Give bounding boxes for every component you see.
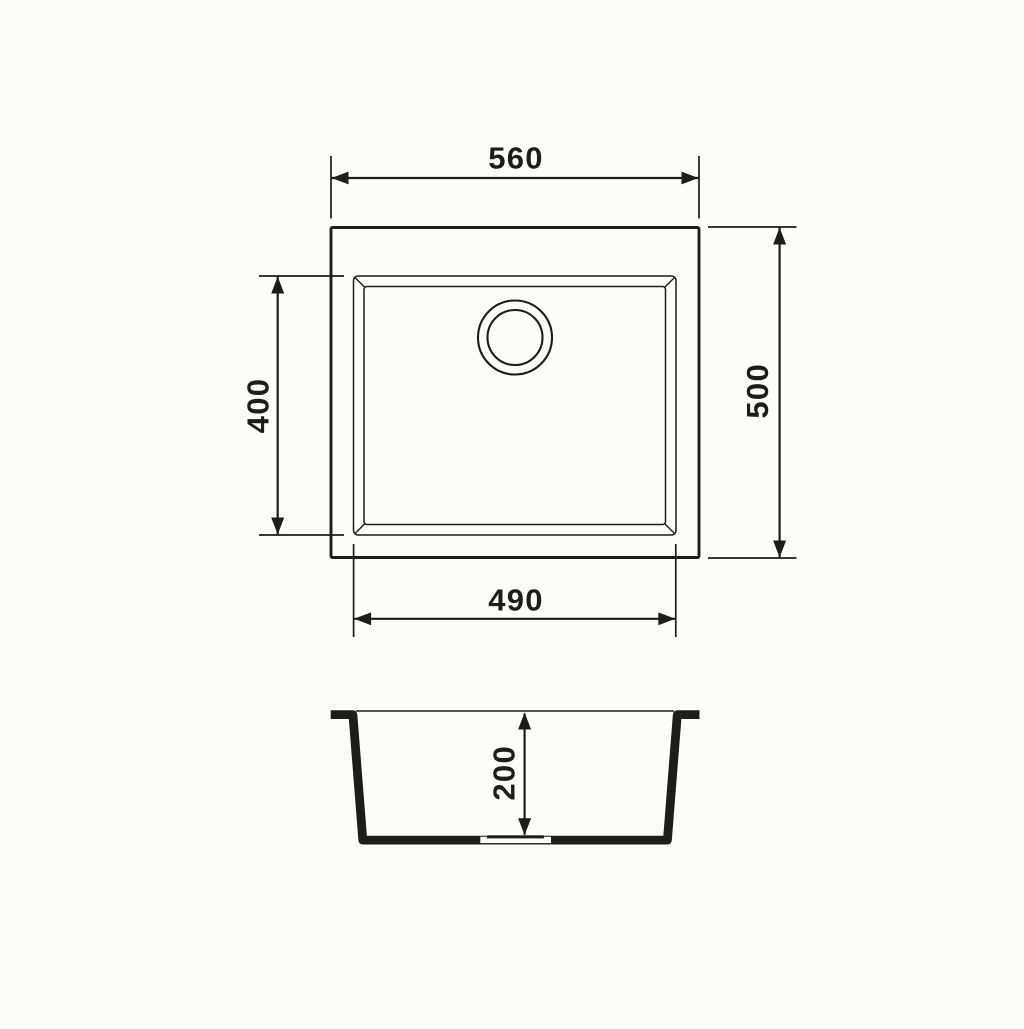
svg-text:560: 560 [488,141,544,176]
svg-text:400: 400 [240,378,275,434]
svg-text:490: 490 [488,583,544,618]
svg-text:200: 200 [486,745,521,801]
svg-text:500: 500 [740,363,775,419]
